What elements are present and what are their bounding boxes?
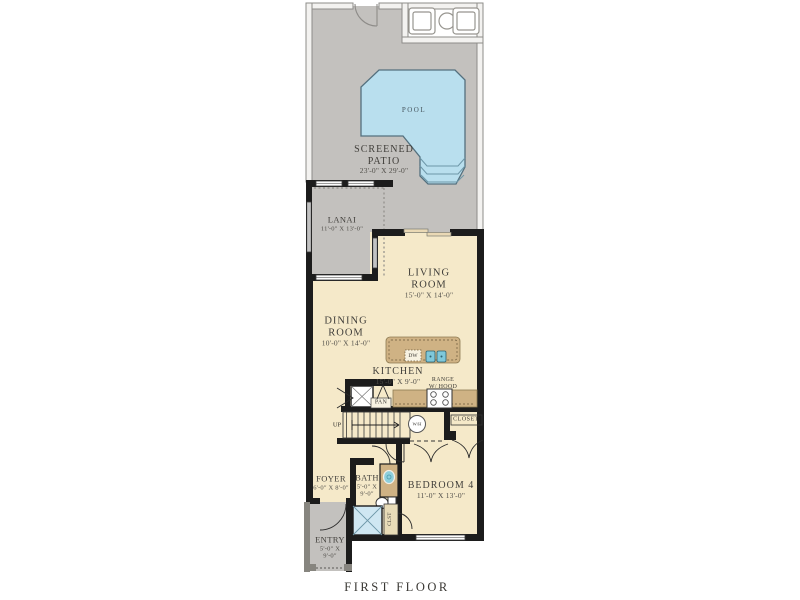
screened-patio-label: SCREENED PATIO 23'-0" X 29'-0" [354,144,414,176]
foyer-label: FOYER 6'-0" X 8'-0" [313,474,349,491]
shower-icon [353,506,382,535]
small-closet-label: CLST [388,512,394,525]
vanity-icon [380,464,398,497]
stairs-up-label: UP [333,421,341,428]
lanai-label: LANAI 11'-0" X 13'-0" [321,215,363,232]
floor-plan-page: POOL SCREENED PATIO 23'-0" X 29'-0" LANA… [0,0,800,600]
bedroom4-label: BEDROOM 4 11'-0" X 13'-0" [408,480,475,500]
floor-plan-drawing [0,0,800,600]
dining-room-label: DINING ROOM 10'-0" X 14'-0" [322,316,371,349]
closet-label: CLOSET [453,417,479,424]
range-label: RANGE W/ HOOD [429,377,457,391]
pantry-label: PAN [375,400,387,407]
kitchen-island [386,337,460,363]
water-heater-label: W/H [413,421,422,426]
entry-label: ENTRY 5'-0" X 9'-0" [315,536,345,561]
bath-label: BATH 5'-0" X 9'-0" [355,474,379,499]
dishwasher-label: DW [408,352,417,358]
living-room-label: LIVING ROOM 15'-0" X 14'-0" [405,268,454,301]
plan-title: FIRST FLOOR [344,580,449,594]
stairs [343,412,410,438]
range-icon [427,389,452,408]
kitchen-label: KITCHEN 15'-0" X 9'-0" [373,366,424,386]
pool-label: POOL [402,106,426,114]
refrigerator-icon [351,386,373,407]
